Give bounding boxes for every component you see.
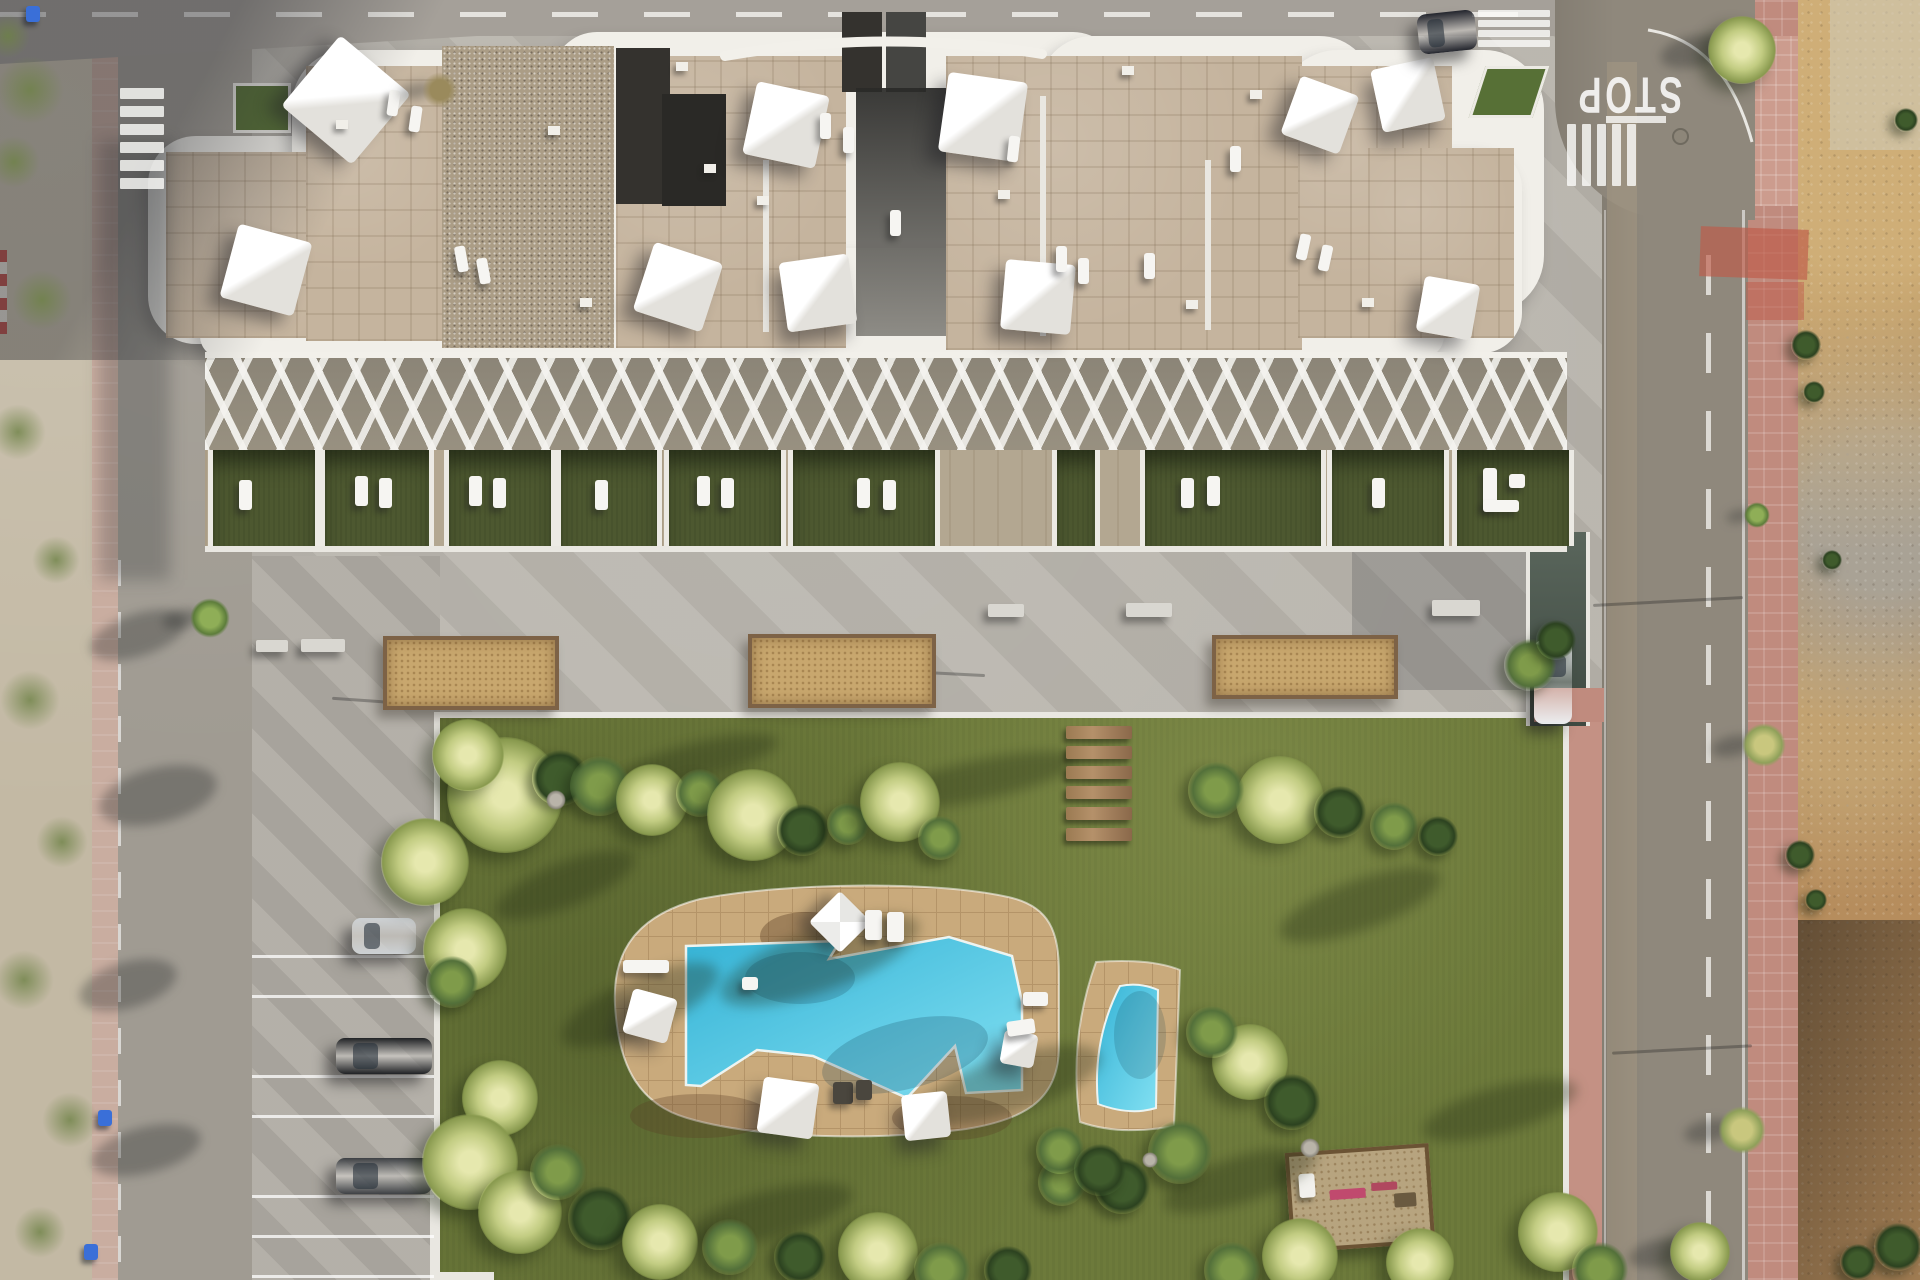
crosswalk-stripe xyxy=(1567,124,1576,186)
parked-car xyxy=(336,1158,432,1194)
plaza-bench xyxy=(988,604,1024,617)
roof-sun-lounger xyxy=(1144,253,1155,279)
terrace-lounger xyxy=(493,478,506,508)
roof-vent-box xyxy=(580,298,592,307)
garden-plant-bush xyxy=(918,816,962,860)
wooden-step-plank xyxy=(1066,766,1132,779)
garden-plant-bush xyxy=(530,1144,586,1200)
crosswalk-stripe xyxy=(1478,30,1550,37)
roof-vent-box xyxy=(336,120,348,129)
roof-vent-box xyxy=(998,190,1010,199)
car-glass xyxy=(364,923,381,948)
terrace-garden xyxy=(664,450,786,546)
terrace-table xyxy=(1509,474,1525,488)
roof-vent-box xyxy=(1122,66,1134,75)
garden-plant-dark xyxy=(1536,620,1576,660)
roof-divider-3 xyxy=(1205,160,1211,330)
shade-sail xyxy=(1416,276,1481,341)
terrace-garden xyxy=(444,450,556,546)
roof-vent-box xyxy=(1186,300,1198,309)
building-shadow-west xyxy=(100,140,170,580)
wooden-step-plank xyxy=(1066,828,1132,841)
scrub-grass-patch xyxy=(12,270,72,330)
corner-red-tiles xyxy=(1699,226,1809,280)
dirt-shrub xyxy=(1803,381,1825,403)
pool-lounger xyxy=(1023,992,1048,1006)
pergola-zigzag-band xyxy=(205,352,1567,461)
scrub-grass-patch xyxy=(32,536,80,584)
roof-sun-lounger xyxy=(1078,258,1089,284)
lawn-top-curb xyxy=(440,712,1567,718)
garden-plant-bush xyxy=(1188,762,1244,818)
garden-plant-dark xyxy=(1314,786,1366,838)
crosswalk-stripe xyxy=(1478,40,1550,47)
pool-side-table xyxy=(742,977,758,990)
pool-lounger xyxy=(623,960,669,973)
parking-line xyxy=(252,1235,434,1238)
roadside-tree xyxy=(422,72,458,108)
roof-sun-lounger xyxy=(843,127,854,153)
sand-planter xyxy=(748,634,936,708)
garden-plant-dark xyxy=(1074,1144,1126,1196)
pool-lounger xyxy=(865,910,882,940)
aerial-scene: STOP xyxy=(0,0,1920,1280)
crosswalk-stripe xyxy=(120,106,164,117)
dirt-shrub xyxy=(1785,840,1815,870)
garden-plant-bush xyxy=(1370,802,1418,850)
terrace-lounger xyxy=(379,478,392,508)
garden-plant-rock xyxy=(1142,1152,1158,1168)
playground-equipment-white xyxy=(1298,1173,1316,1198)
terrace-lounger xyxy=(697,476,710,506)
terrace-garden xyxy=(1140,450,1326,546)
garden-plant-bush xyxy=(426,956,478,1008)
crosswalk-stripe xyxy=(120,142,164,153)
garden-plant-bush xyxy=(702,1219,758,1275)
scrub-grass-patch xyxy=(14,1206,66,1258)
parking-line xyxy=(252,1075,434,1078)
terrace-garden xyxy=(208,450,320,546)
roof-sun-lounger xyxy=(1230,146,1241,172)
trash-bin xyxy=(84,1244,98,1260)
playground-equipment-dark xyxy=(1394,1192,1417,1208)
terrace-lounger xyxy=(1372,478,1385,508)
roof-dark-core xyxy=(856,88,946,336)
roadside-tree xyxy=(1744,502,1770,528)
crosswalk-stripe xyxy=(120,88,164,99)
roof-vent-box xyxy=(676,62,688,71)
wooden-step-plank xyxy=(1066,746,1132,759)
terrace-lounger xyxy=(1181,478,1194,508)
parking-line xyxy=(252,1115,434,1118)
terrace-lounger xyxy=(857,478,870,508)
terrace-lounger xyxy=(355,476,368,506)
garden-plant-dark xyxy=(777,804,829,856)
crosswalk-stripe xyxy=(1612,124,1621,186)
car-glass xyxy=(1427,18,1445,47)
garden-plant-palm xyxy=(381,818,469,906)
pool-lounger xyxy=(856,1080,872,1100)
dirt-shrub xyxy=(1874,1223,1920,1271)
corner-red-tiles-small xyxy=(1746,282,1804,320)
parking-line xyxy=(252,1275,434,1278)
sand-planter xyxy=(383,636,559,710)
terrace-lounger xyxy=(595,480,608,510)
plaza-bench xyxy=(1432,600,1480,616)
garden-plant-dark xyxy=(1418,816,1458,856)
roadside-tree xyxy=(1708,16,1776,84)
garden-plant-palm xyxy=(622,1204,698,1280)
terrace-garden xyxy=(1327,450,1449,546)
playground-equipment-pink-1 xyxy=(1329,1188,1366,1200)
scrub-grass-patch xyxy=(0,670,60,730)
roadside-tree xyxy=(1718,1106,1766,1154)
roadside-tree xyxy=(1742,723,1786,767)
terrace-garden xyxy=(788,450,940,546)
shade-sail xyxy=(742,81,830,169)
wooden-step-plank xyxy=(1066,807,1132,820)
parking-line xyxy=(252,955,434,958)
right-road-left-edge-line xyxy=(1604,210,1606,1280)
terrace-row-curb xyxy=(205,546,1567,552)
roof-vent-box xyxy=(1250,90,1262,99)
crosswalk-stripe xyxy=(120,124,164,135)
building-shadow-northwest xyxy=(0,0,620,360)
garden-plant-rock xyxy=(1300,1138,1320,1158)
wooden-step-plank xyxy=(1066,786,1132,799)
roof-vent-box xyxy=(548,126,560,135)
stair-core-left xyxy=(842,12,882,92)
plaza-bench xyxy=(301,639,345,652)
scrub-grass-patch xyxy=(42,1092,98,1148)
plaza-bench xyxy=(256,640,288,652)
scrub-grass-patch xyxy=(36,816,88,868)
shade-sail xyxy=(1370,57,1446,133)
roadside-tree xyxy=(1670,1222,1730,1280)
roof-divider-1 xyxy=(763,160,769,332)
terrace-garden xyxy=(1452,450,1574,546)
terrace-lounger xyxy=(239,480,252,510)
roof-dark-slab-2 xyxy=(662,94,726,206)
crosswalk-stripe xyxy=(1582,124,1591,186)
terrace-lounger xyxy=(469,476,482,506)
right-pink-path xyxy=(1569,690,1602,1280)
garden-plant-bush xyxy=(1186,1006,1238,1058)
terrace-lounger xyxy=(721,478,734,508)
dirt-shrub xyxy=(1894,108,1918,132)
street-car xyxy=(1416,9,1478,55)
parked-car xyxy=(336,1038,432,1074)
terrace-lounger xyxy=(883,480,896,510)
roof-sun-lounger xyxy=(820,113,831,139)
terrace-lounger xyxy=(1207,476,1220,506)
terrace-sofa xyxy=(1483,500,1519,512)
roof-vent-box xyxy=(704,164,716,173)
wooden-step-plank xyxy=(1066,726,1132,739)
trash-bin xyxy=(98,1110,112,1126)
roof-sun-lounger xyxy=(890,210,901,236)
parked-car xyxy=(352,918,416,954)
playground-equipment-pink-2 xyxy=(1371,1181,1397,1191)
garden-plant-dark xyxy=(774,1231,826,1280)
pool-lounger xyxy=(833,1082,853,1104)
pool-lounger xyxy=(887,912,904,942)
roadside-tree xyxy=(190,598,230,638)
car-glass xyxy=(353,1163,378,1188)
dirt-shrub xyxy=(1822,550,1842,570)
roof-sun-lounger xyxy=(1056,246,1067,272)
parking-line xyxy=(252,995,434,998)
garden-plant-rock xyxy=(546,790,566,810)
sand-planter xyxy=(1212,635,1398,699)
stair-core-right xyxy=(886,12,926,92)
pool-shade-sail xyxy=(901,1091,952,1142)
dirt-shrub xyxy=(1805,889,1827,911)
crosswalk-stripe xyxy=(120,178,164,189)
crosswalk-stripe xyxy=(1478,10,1550,17)
crosswalk-stripe xyxy=(1597,124,1606,186)
garden-plant-dark xyxy=(1264,1074,1320,1130)
crosswalk-stripe xyxy=(1627,124,1636,186)
crosswalk-stripe xyxy=(120,160,164,171)
pool-shade-sail xyxy=(756,1076,819,1139)
parking-line xyxy=(252,1195,434,1198)
crosswalk-stripe xyxy=(1478,20,1550,27)
car-glass xyxy=(353,1043,378,1068)
terrace-garden xyxy=(556,450,662,546)
dirt-shrub xyxy=(1840,1244,1876,1280)
terrace-garden xyxy=(1052,450,1100,546)
right-road-parking-lane xyxy=(1607,62,1637,1280)
dirt-shrub xyxy=(1791,330,1821,360)
trash-bin xyxy=(26,6,40,22)
lawn-corner-fence-h xyxy=(430,1272,494,1280)
terrace-garden xyxy=(320,450,434,546)
garden-plant-bush xyxy=(1148,1120,1212,1184)
garden-plant-palm xyxy=(1236,756,1324,844)
roof-vent-box xyxy=(1362,298,1374,307)
shade-sail xyxy=(778,253,857,332)
plaza-bench xyxy=(1126,603,1172,617)
garden-plant-palm xyxy=(432,719,504,791)
roof-vent-box xyxy=(757,196,769,205)
